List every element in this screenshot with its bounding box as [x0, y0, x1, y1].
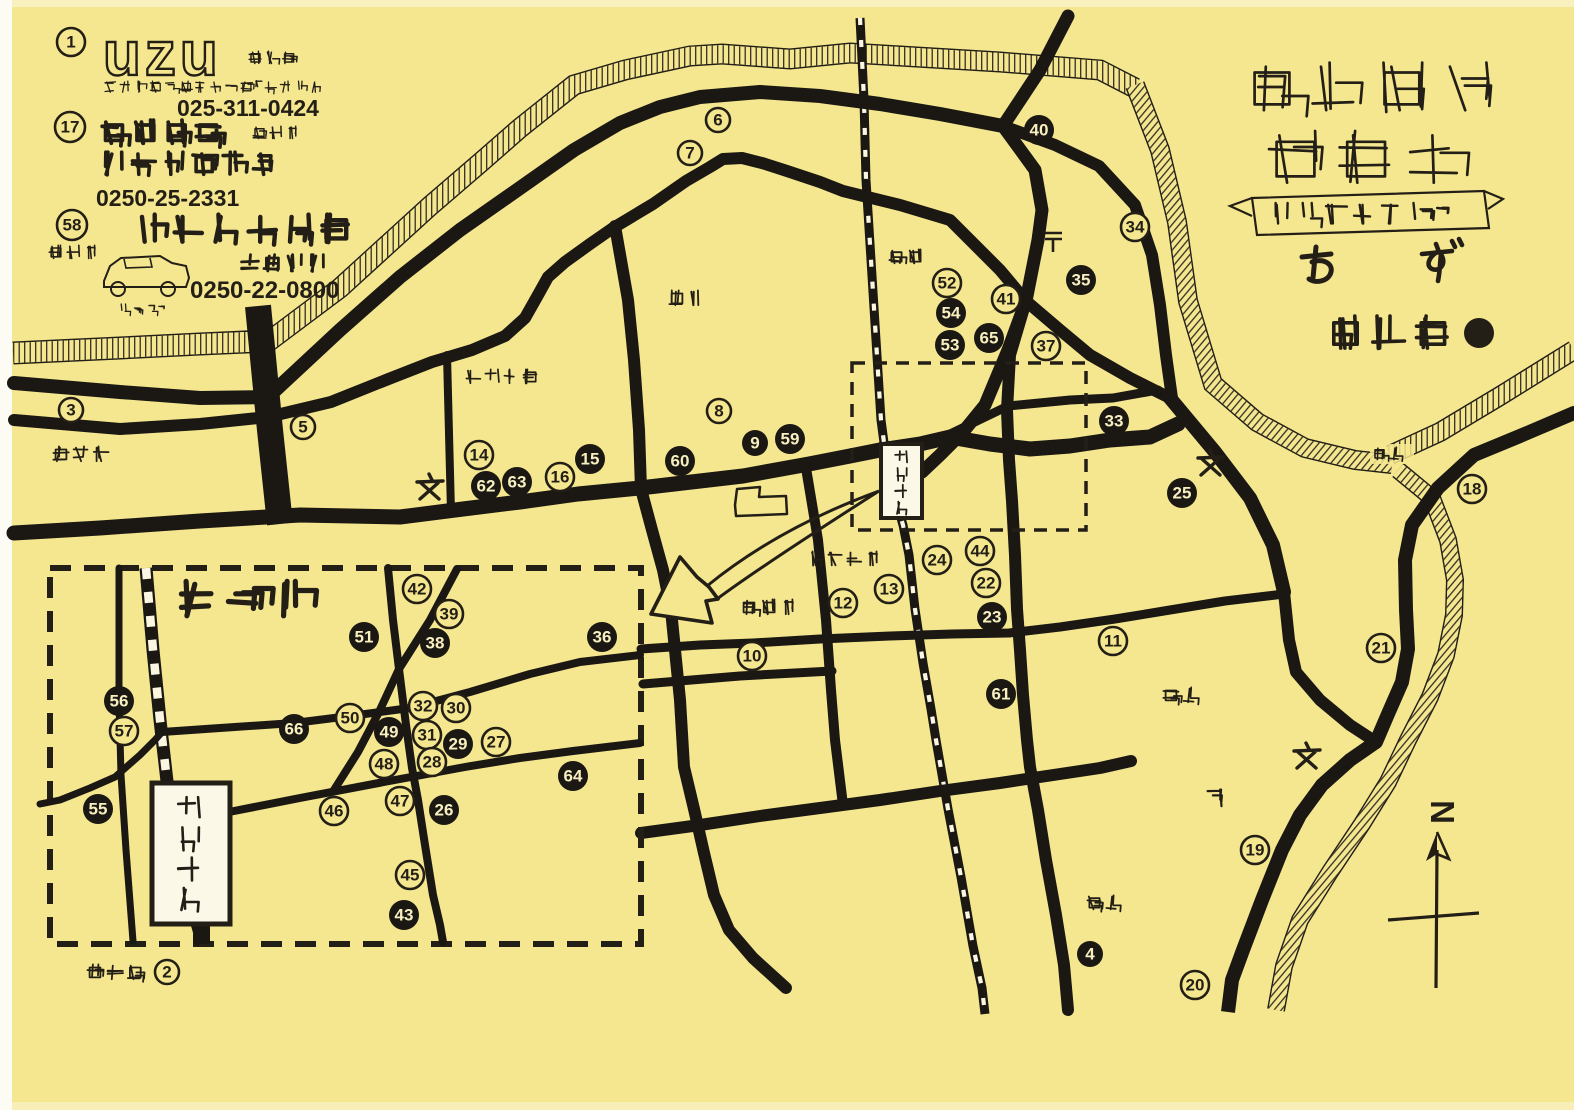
svg-text:54: 54: [942, 304, 961, 323]
svg-text:45: 45: [401, 866, 420, 885]
svg-text:31: 31: [418, 726, 437, 745]
svg-text:65: 65: [980, 329, 999, 348]
svg-text:0250-25-2331: 0250-25-2331: [96, 185, 239, 211]
svg-text:62: 62: [477, 477, 496, 496]
svg-text:6: 6: [713, 111, 722, 130]
svg-text:59: 59: [781, 430, 800, 449]
svg-text:32: 32: [414, 697, 433, 716]
svg-text:16: 16: [551, 468, 570, 487]
svg-text:28: 28: [423, 753, 442, 772]
svg-text:38: 38: [426, 634, 445, 653]
svg-text:25: 25: [1173, 484, 1192, 503]
svg-text:10: 10: [743, 647, 762, 666]
svg-text:37: 37: [1037, 337, 1056, 356]
svg-text:41: 41: [997, 290, 1016, 309]
svg-text:51: 51: [355, 628, 374, 647]
svg-text:36: 36: [593, 628, 612, 647]
svg-text:4: 4: [1085, 945, 1095, 964]
svg-text:47: 47: [391, 792, 410, 811]
svg-text:5: 5: [298, 418, 307, 437]
svg-text:14: 14: [470, 446, 489, 465]
svg-text:2: 2: [162, 963, 171, 982]
svg-text:N: N: [1424, 800, 1461, 824]
svg-text:46: 46: [325, 802, 344, 821]
svg-text:35: 35: [1072, 271, 1091, 290]
svg-text:42: 42: [408, 580, 427, 599]
svg-text:64: 64: [564, 767, 583, 786]
svg-text:49: 49: [380, 723, 399, 742]
svg-text:33: 33: [1105, 412, 1124, 431]
svg-text:21: 21: [1372, 639, 1391, 658]
svg-text:43: 43: [395, 906, 414, 925]
svg-text:34: 34: [1126, 218, 1145, 237]
svg-text:7: 7: [685, 144, 694, 163]
svg-text:13: 13: [880, 580, 899, 599]
svg-text:56: 56: [110, 692, 129, 711]
svg-text:025-311-0424: 025-311-0424: [177, 95, 319, 121]
svg-text:18: 18: [1463, 480, 1482, 499]
svg-text:61: 61: [992, 685, 1011, 704]
svg-text:58: 58: [63, 216, 82, 235]
svg-text:8: 8: [714, 402, 723, 421]
svg-text:66: 66: [285, 720, 304, 739]
svg-text:20: 20: [1186, 976, 1205, 995]
svg-text:60: 60: [671, 452, 690, 471]
svg-text:1: 1: [66, 33, 75, 52]
svg-text:48: 48: [375, 755, 394, 774]
svg-text:63: 63: [508, 473, 527, 492]
svg-text:57: 57: [115, 722, 134, 741]
svg-text:19: 19: [1246, 841, 1265, 860]
svg-text:40: 40: [1030, 121, 1049, 140]
svg-text:39: 39: [440, 605, 459, 624]
svg-text:29: 29: [449, 735, 468, 754]
svg-text:0250-22-0800: 0250-22-0800: [190, 277, 339, 304]
svg-text:uzu: uzu: [103, 20, 222, 89]
svg-text:9: 9: [750, 434, 759, 453]
svg-text:50: 50: [341, 709, 360, 728]
svg-text:23: 23: [983, 608, 1002, 627]
svg-text:55: 55: [89, 800, 108, 819]
svg-text:11: 11: [1104, 632, 1122, 651]
svg-text:26: 26: [435, 801, 454, 820]
svg-text:17: 17: [61, 118, 80, 137]
svg-text:27: 27: [487, 733, 506, 752]
svg-text:15: 15: [581, 450, 600, 469]
svg-text:12: 12: [834, 594, 853, 613]
svg-text:24: 24: [928, 551, 947, 570]
svg-text:22: 22: [977, 574, 996, 593]
svg-text:3: 3: [66, 401, 75, 420]
svg-text:53: 53: [941, 336, 960, 355]
svg-text:52: 52: [938, 274, 957, 293]
svg-text:44: 44: [971, 542, 990, 561]
svg-text:30: 30: [447, 699, 466, 718]
